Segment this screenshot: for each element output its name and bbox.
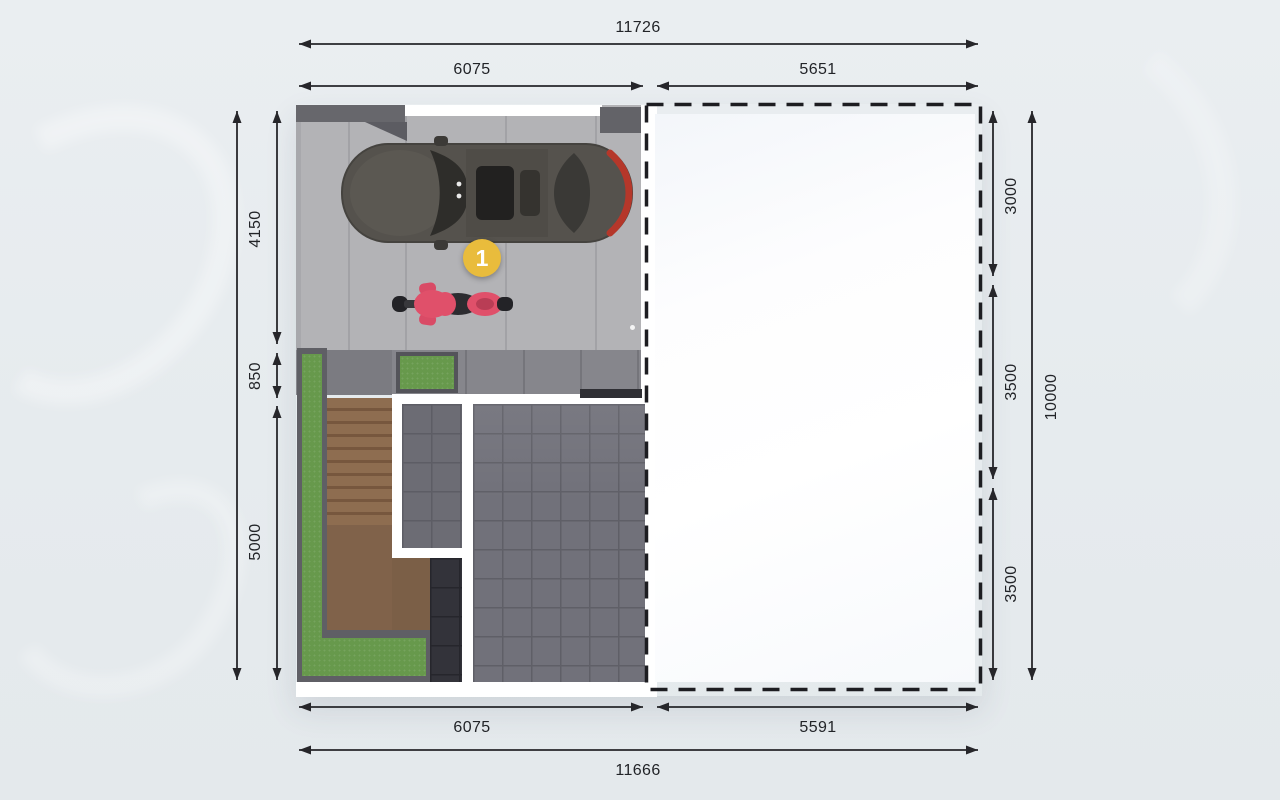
staircase-steps: [322, 398, 392, 525]
top-right-wall-segment: [600, 107, 645, 133]
wood-deck-extension: [392, 558, 430, 630]
light-dot: [630, 325, 635, 330]
motorcycle-top-view: [392, 280, 514, 328]
grass-strip-left: [302, 354, 322, 676]
top-wall-segment: [296, 105, 405, 122]
planter-box-grass: [400, 356, 454, 389]
stair-landing-top: [322, 350, 392, 395]
car-top-view: [338, 136, 638, 250]
bottom-boundary-white: [296, 682, 657, 697]
dark-tile-strip: [430, 558, 462, 682]
planter-box-border: [396, 352, 458, 393]
floor-plan-page: 1: [0, 0, 1280, 800]
main-room-tiles: [473, 404, 645, 682]
unit-marker-1[interactable]: 1: [463, 239, 501, 277]
small-room-tiles: [402, 404, 462, 548]
expansion-area: [655, 114, 975, 682]
unit-marker-label: 1: [476, 245, 489, 272]
door-threshold-bar: [580, 389, 642, 398]
wall-small-room-left: [392, 394, 402, 558]
staircase-landing: [322, 525, 392, 630]
terrace-joint: [523, 350, 525, 395]
driveway-left-edge: [296, 105, 301, 350]
wall-vertical-divider: [462, 394, 473, 682]
terrace-joint: [465, 350, 467, 395]
wall-small-room-bottom: [392, 548, 472, 558]
grass-strip-bottom: [302, 638, 426, 676]
top-boundary-white: [405, 105, 602, 116]
